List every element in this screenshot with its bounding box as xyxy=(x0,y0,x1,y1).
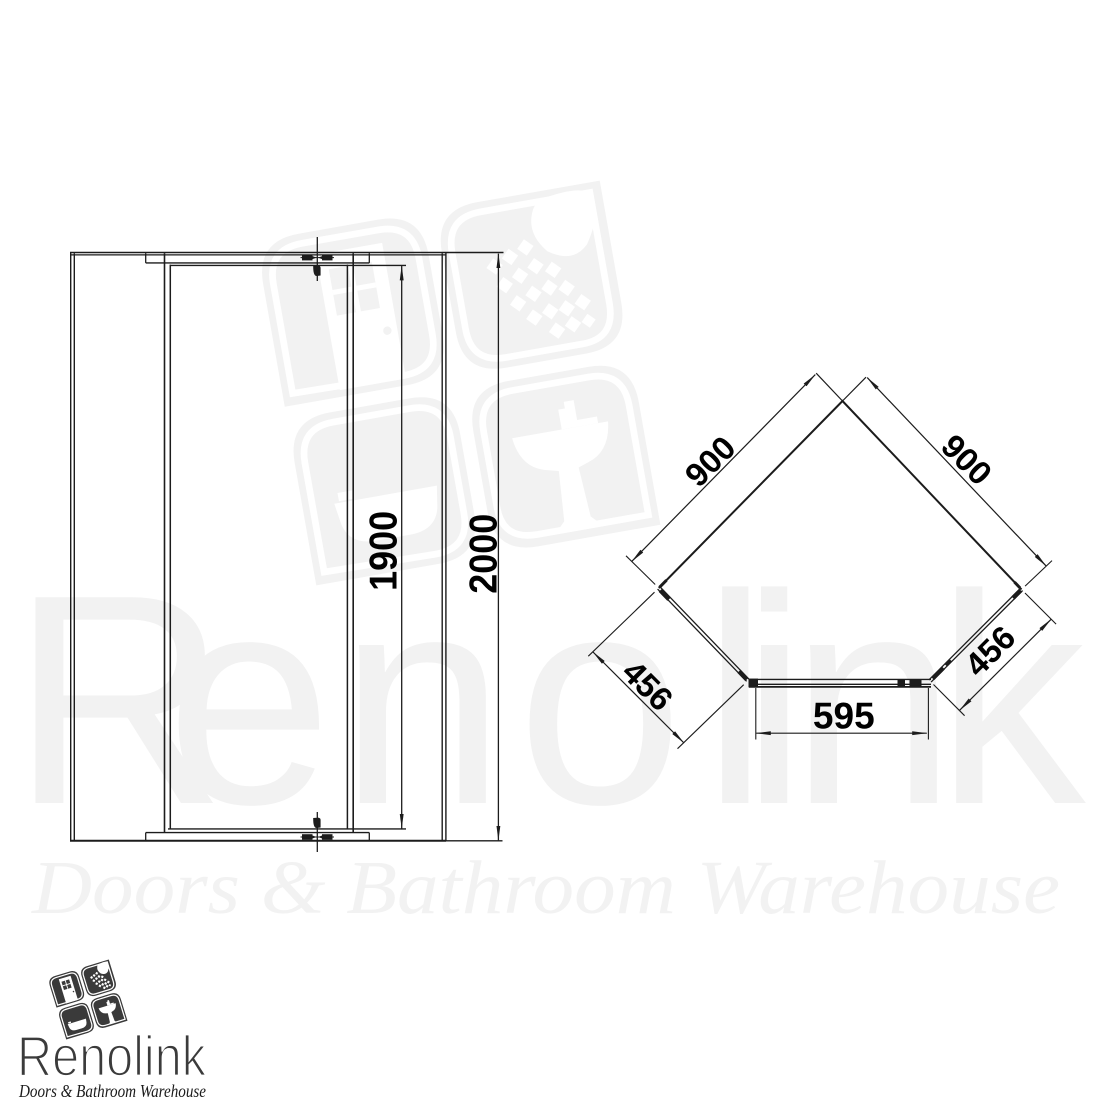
svg-text:595: 595 xyxy=(813,696,875,737)
svg-text:900: 900 xyxy=(934,427,999,492)
svg-text:2000: 2000 xyxy=(463,514,506,594)
svg-text:Doors & Bathroom Warehouse: Doors & Bathroom Warehouse xyxy=(31,846,1060,930)
svg-text:1900: 1900 xyxy=(363,511,406,591)
svg-text:Renolink: Renolink xyxy=(17,1025,206,1089)
svg-text:Doors & Bathroom Warehouse: Doors & Bathroom Warehouse xyxy=(18,1081,206,1100)
svg-text:900: 900 xyxy=(678,429,743,494)
